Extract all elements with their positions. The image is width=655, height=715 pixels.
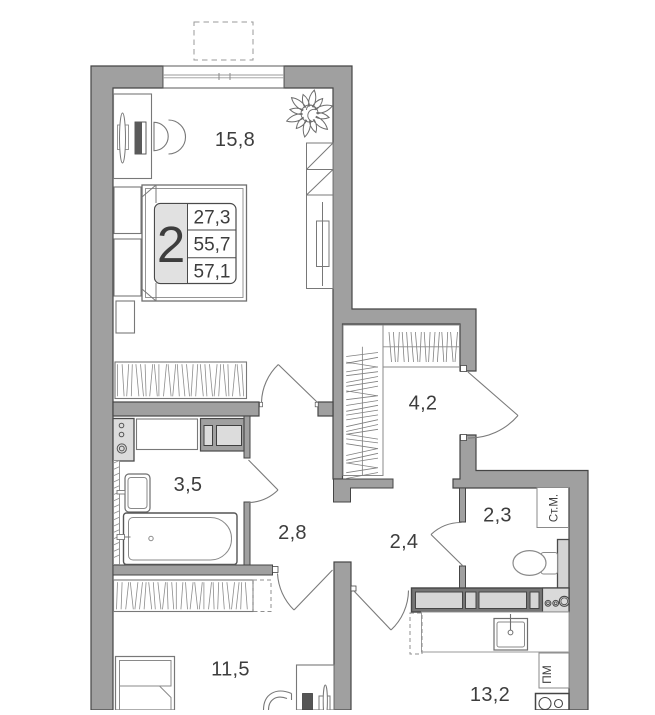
- svg-text:4,2: 4,2: [409, 393, 438, 415]
- svg-text:ПМ: ПМ: [540, 665, 554, 684]
- svg-text:Ст.М.: Ст.М.: [549, 494, 561, 522]
- svg-text:57,1: 57,1: [194, 262, 231, 283]
- svg-text:2,4: 2,4: [390, 531, 419, 553]
- svg-text:15,8: 15,8: [215, 129, 255, 151]
- svg-text:2,3: 2,3: [483, 505, 512, 527]
- svg-text:2: 2: [157, 216, 185, 273]
- svg-text:55,7: 55,7: [194, 235, 231, 256]
- svg-text:2,8: 2,8: [278, 522, 307, 544]
- svg-text:11,5: 11,5: [211, 659, 250, 681]
- svg-text:3,5: 3,5: [174, 474, 203, 496]
- svg-text:27,3: 27,3: [194, 208, 231, 229]
- svg-text:13,2: 13,2: [470, 684, 510, 706]
